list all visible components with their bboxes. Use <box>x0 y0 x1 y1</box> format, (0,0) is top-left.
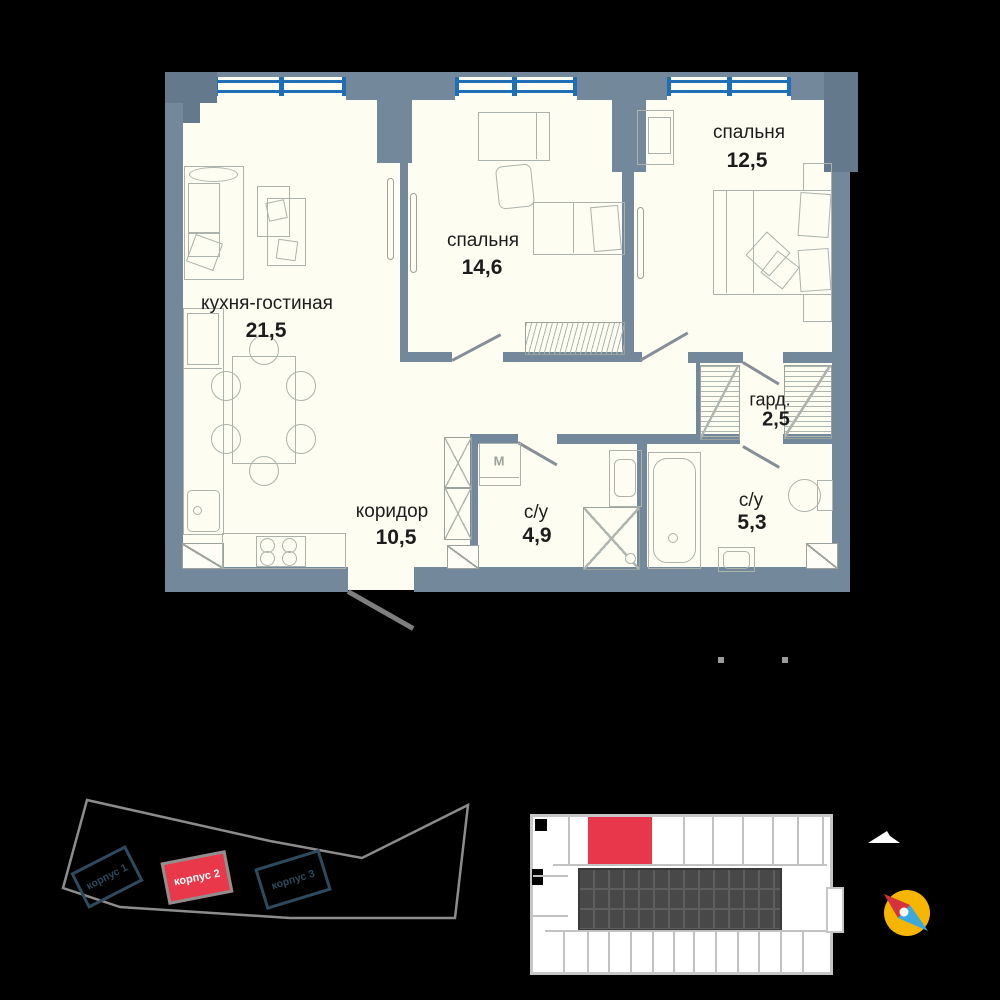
north-arrow <box>860 820 910 850</box>
key-plan-notch <box>532 869 543 885</box>
bed-divider <box>573 202 574 253</box>
pillow <box>798 192 832 238</box>
chair <box>249 456 279 486</box>
sink-drain <box>193 506 202 515</box>
wall <box>577 72 667 100</box>
floor-plan: M кухня-гостиная 21,5 спальня 14,6 спаль… <box>0 0 1000 700</box>
building-label: корпус 2 <box>173 867 221 888</box>
bed-divider <box>753 190 754 293</box>
key-plan-balcony <box>826 887 844 933</box>
counter-divider <box>183 368 222 369</box>
wall <box>400 160 408 358</box>
wall <box>346 72 455 100</box>
chair <box>286 424 316 454</box>
dimension-mark <box>718 657 724 663</box>
unit-separator <box>563 930 565 972</box>
bathtub-drain <box>668 533 678 543</box>
low-window <box>182 543 224 569</box>
window-mullion <box>455 77 459 96</box>
closet <box>700 365 740 440</box>
hall-wardrobe <box>444 437 472 489</box>
hall-wardrobe <box>444 487 472 540</box>
room-label-bathroom-2: с/у <box>739 490 763 512</box>
table-decor <box>276 239 299 262</box>
kitchen-sink <box>187 490 220 532</box>
wall <box>165 103 183 592</box>
unit-separator <box>533 915 568 917</box>
washer-shelf <box>479 477 519 478</box>
unit-separator <box>652 930 654 972</box>
unit-separator <box>683 817 685 864</box>
unit-separator <box>780 930 782 972</box>
key-plan <box>530 814 833 975</box>
wardrobe <box>525 322 625 355</box>
wall <box>165 567 348 592</box>
wall <box>824 72 858 172</box>
chair <box>286 371 316 401</box>
unit-separator <box>587 930 589 972</box>
nightstand <box>803 294 832 322</box>
unit-separator <box>772 817 774 864</box>
compass-icon <box>860 865 950 955</box>
nightstand <box>803 163 832 191</box>
unit-separator <box>533 875 568 877</box>
dining-table <box>232 356 296 464</box>
basin-bowl <box>614 459 636 497</box>
building-label: корпус 3 <box>270 867 316 891</box>
pillow <box>590 205 622 252</box>
window-mullion <box>667 77 671 96</box>
room-area-corridor: 10,5 <box>376 526 417 550</box>
room-label-corridor: коридор <box>356 501 429 523</box>
sofa-cushion <box>188 183 220 233</box>
desk <box>478 112 550 161</box>
radiator <box>637 207 644 279</box>
room-label-bathroom-1: с/у <box>524 502 548 524</box>
unit-separator <box>737 930 739 972</box>
unit-separator <box>742 817 744 864</box>
bed-divider <box>726 190 727 293</box>
unit-separator <box>608 930 610 972</box>
wall-column <box>377 98 412 163</box>
building-label: корпус 1 <box>84 862 129 893</box>
wall <box>400 352 452 362</box>
unit-separator <box>802 930 804 972</box>
stove-burner <box>260 551 275 566</box>
unit-separator <box>822 817 824 864</box>
key-plan-highlight-unit[interactable] <box>588 817 652 864</box>
low-window <box>806 543 838 569</box>
window-mullion <box>279 77 284 96</box>
unit-separator <box>673 930 675 972</box>
desk-divider <box>536 112 537 159</box>
room-area-wardrobe: 2,5 <box>762 409 790 432</box>
window-mullion <box>512 77 517 96</box>
unit-separator <box>568 817 570 864</box>
dimension-mark <box>782 657 788 663</box>
site-plan: корпус 1 корпус 2 корпус 3 <box>0 760 520 1000</box>
entrance-door-leaf <box>347 589 415 630</box>
table-decor <box>265 199 288 222</box>
low-window <box>447 545 479 569</box>
radiator <box>387 178 394 260</box>
wall <box>832 172 850 592</box>
basin-bowl <box>723 551 750 569</box>
unit-separator <box>715 930 717 972</box>
wardrobe-inner <box>648 117 671 154</box>
room-area-bedroom-2: 12,5 <box>727 149 768 173</box>
pillow <box>798 248 832 292</box>
key-plan-core <box>578 868 782 931</box>
room-label-bedroom-1: спальня <box>447 230 519 252</box>
wall <box>165 72 850 77</box>
office-chair <box>495 163 535 210</box>
unit-separator <box>693 930 695 972</box>
room-label-bedroom-2: спальня <box>713 122 785 144</box>
unit-separator <box>797 817 799 864</box>
wall <box>783 352 832 363</box>
room-label-wardrobe: гард. <box>749 390 790 411</box>
closet <box>784 365 832 439</box>
toilet-tank <box>817 480 833 511</box>
radiator <box>410 193 417 273</box>
room-area-bathroom-1: 4,9 <box>522 524 551 548</box>
apartment-plan-page: M кухня-гостиная 21,5 спальня 14,6 спаль… <box>0 0 1000 1000</box>
room-area-bedroom-1: 14,6 <box>462 256 503 280</box>
room-label-kitchen-living: кухня-гостиная <box>201 293 333 315</box>
bathtub-inner <box>653 458 696 563</box>
key-plan-corner <box>535 819 547 831</box>
unit-row-line <box>553 864 827 866</box>
sofa-armrest <box>189 167 238 182</box>
stove-burner <box>282 551 297 566</box>
unit-separator <box>630 930 632 972</box>
washer-label: M <box>494 454 505 469</box>
window-mullion <box>727 77 732 96</box>
unit-separator <box>758 930 760 972</box>
room-area-kitchen-living: 21,5 <box>246 319 287 343</box>
unit-separator <box>712 817 714 864</box>
wall <box>414 567 850 592</box>
room-area-bathroom-2: 5,3 <box>737 511 766 535</box>
shower-drain <box>625 553 636 564</box>
fridge <box>187 313 219 365</box>
